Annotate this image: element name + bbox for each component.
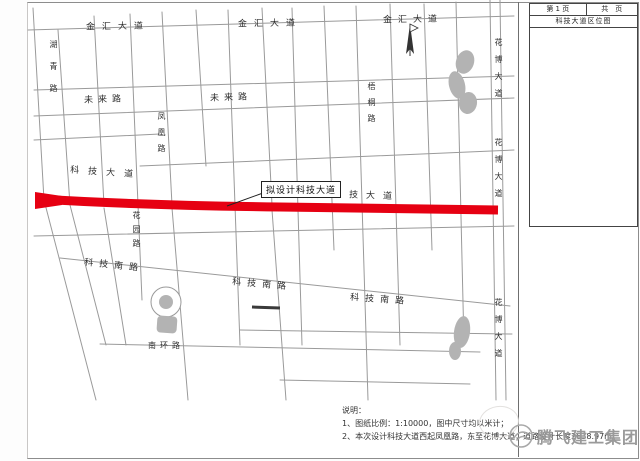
road-label-wutong: 梧桐路: [366, 82, 376, 130]
road-label-huabo-mid: 花博大道: [493, 138, 503, 206]
road-label-weilai-west: 未来路: [84, 94, 126, 105]
road-label-huabo-top: 花博大道: [493, 38, 503, 106]
road-label-huayuan: 花园路: [131, 211, 141, 253]
company-name: 腾飞建工集团: [537, 424, 639, 448]
road-label-weilai-mid: 未来路: [210, 92, 252, 103]
ponds: [446, 48, 479, 360]
north-arrow-icon: [406, 24, 418, 56]
proposed-road-callout: 拟设计科技大道: [261, 181, 341, 198]
title-block: 第 1 页 共 页 科技大道区位图: [529, 3, 638, 227]
company-logo-icon: [508, 423, 534, 449]
road-label-jinhui-mid: 金汇大道: [238, 18, 302, 29]
drawing-sheet: 金汇大道 金汇大道 金汇大道 湖青路 未来路 未来路 凤凰路 梧桐路 科技大道 …: [0, 0, 640, 461]
road-label-jinhui-west: 金汇大道: [86, 21, 150, 32]
road-label-huabo-bot: 花博大道: [493, 298, 503, 366]
title-block-body: [530, 28, 637, 226]
rail-tick: [252, 306, 280, 310]
page-number: 第 1 页: [530, 4, 587, 15]
road-label-jinhui-east: 金汇大道: [383, 14, 443, 25]
roundabout: [151, 287, 181, 334]
road-label-nanhuan: 南环路: [148, 341, 184, 351]
company-watermark: 腾飞建工集团: [508, 423, 639, 449]
panel-divider: [518, 2, 519, 457]
road-label-huqing: 湖青路: [48, 40, 58, 106]
page-total: 共 页: [587, 4, 637, 15]
road-label-fenghuang: 凤凰路: [156, 112, 166, 160]
sheet-title: 科技大道区位图: [530, 16, 637, 28]
